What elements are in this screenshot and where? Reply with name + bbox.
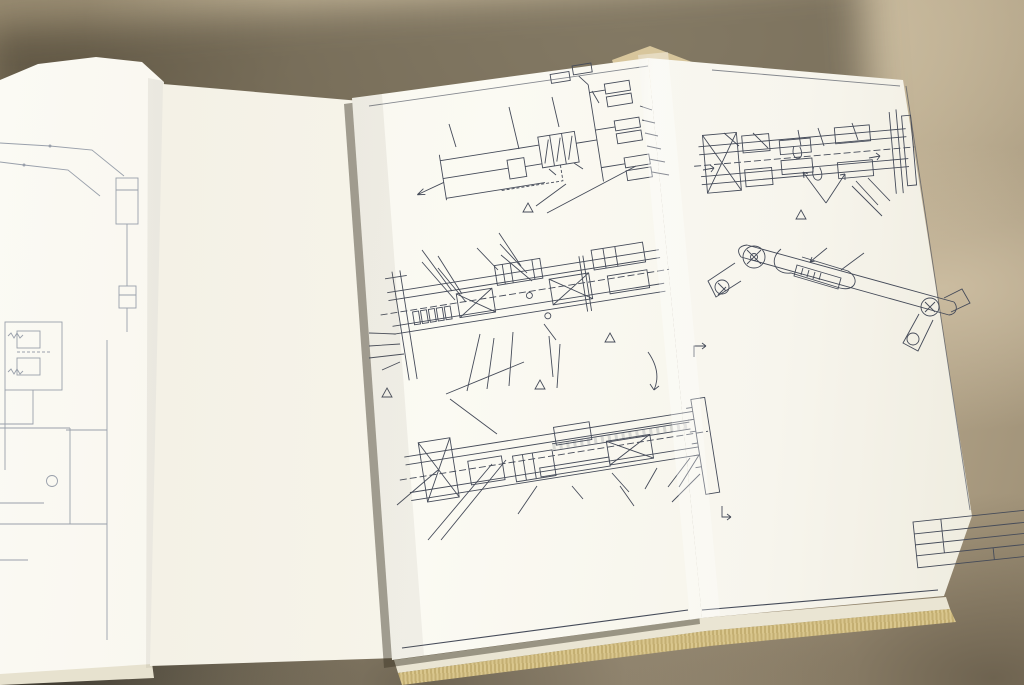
photo-of-open-manual	[0, 0, 1024, 685]
book-shadow	[0, 0, 898, 590]
